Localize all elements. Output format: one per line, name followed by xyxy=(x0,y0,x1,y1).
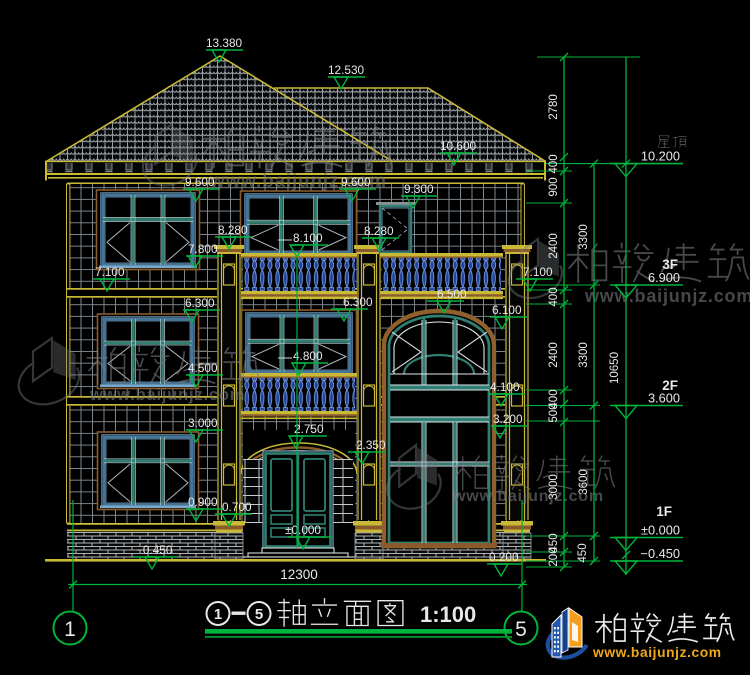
svg-text:6.900: 6.900 xyxy=(648,270,680,285)
svg-text:400: 400 xyxy=(548,287,560,306)
svg-text:4.100: 4.100 xyxy=(490,380,520,394)
svg-text:9.300: 9.300 xyxy=(404,182,434,196)
svg-text:8.280: 8.280 xyxy=(364,224,394,238)
svg-text:450: 450 xyxy=(577,543,589,562)
svg-text:1: 1 xyxy=(214,606,222,623)
svg-text:2.350: 2.350 xyxy=(356,438,386,452)
svg-text:7.800: 7.800 xyxy=(188,242,218,256)
svg-text:6.100: 6.100 xyxy=(492,303,522,317)
svg-text:2400: 2400 xyxy=(548,342,560,368)
svg-text:www.baijunjz.com: www.baijunjz.com xyxy=(89,386,245,404)
svg-text:5: 5 xyxy=(255,606,263,623)
svg-text:3300: 3300 xyxy=(578,342,590,368)
svg-text:13.380: 13.380 xyxy=(206,36,243,50)
svg-text:1: 1 xyxy=(64,618,76,641)
svg-text:0.200: 0.200 xyxy=(489,550,519,564)
svg-text:6.300: 6.300 xyxy=(343,295,373,309)
svg-text:−0.450: −0.450 xyxy=(641,546,681,561)
svg-text:2780: 2780 xyxy=(548,94,560,120)
svg-text:5: 5 xyxy=(515,618,527,641)
svg-text:6.300: 6.300 xyxy=(185,296,215,310)
svg-text:3.200: 3.200 xyxy=(493,412,523,426)
svg-text:10650: 10650 xyxy=(609,352,621,384)
svg-text:6.500: 6.500 xyxy=(437,287,467,301)
svg-text:3600: 3600 xyxy=(578,469,590,495)
svg-text:1F: 1F xyxy=(656,504,672,519)
svg-text:3000: 3000 xyxy=(548,474,560,500)
svg-text:12300: 12300 xyxy=(280,567,318,582)
svg-text:3.600: 3.600 xyxy=(648,391,680,406)
svg-text:−0.450: −0.450 xyxy=(136,543,173,557)
svg-text:www.baijunjz.com: www.baijunjz.com xyxy=(592,645,722,660)
svg-text:10.600: 10.600 xyxy=(440,139,477,153)
svg-text:200: 200 xyxy=(548,547,560,566)
svg-text:0.700: 0.700 xyxy=(222,500,252,514)
svg-text:±0.000: ±0.000 xyxy=(285,523,321,537)
svg-text:3300: 3300 xyxy=(578,224,590,250)
svg-text:±0.000: ±0.000 xyxy=(641,523,680,538)
svg-text:7.100: 7.100 xyxy=(523,265,553,279)
svg-text:9.600: 9.600 xyxy=(341,175,371,189)
svg-text:400: 400 xyxy=(548,154,560,173)
svg-text:9.600: 9.600 xyxy=(185,175,215,189)
svg-text:2.750: 2.750 xyxy=(294,422,324,436)
svg-text:8.100: 8.100 xyxy=(293,231,323,245)
svg-text:1:100: 1:100 xyxy=(420,602,476,627)
svg-text:2400: 2400 xyxy=(548,233,560,259)
svg-text:7.100: 7.100 xyxy=(95,265,125,279)
svg-text:12.530: 12.530 xyxy=(328,63,365,77)
svg-text:500: 500 xyxy=(548,403,560,422)
svg-text:0.900: 0.900 xyxy=(188,495,218,509)
svg-text:10.200: 10.200 xyxy=(641,149,680,164)
svg-text:4.500: 4.500 xyxy=(188,361,218,375)
svg-text:8.280: 8.280 xyxy=(218,223,248,237)
svg-text:900: 900 xyxy=(548,177,560,196)
svg-text:www.baijunjz.com: www.baijunjz.com xyxy=(584,286,750,306)
svg-text:3.000: 3.000 xyxy=(188,416,218,430)
